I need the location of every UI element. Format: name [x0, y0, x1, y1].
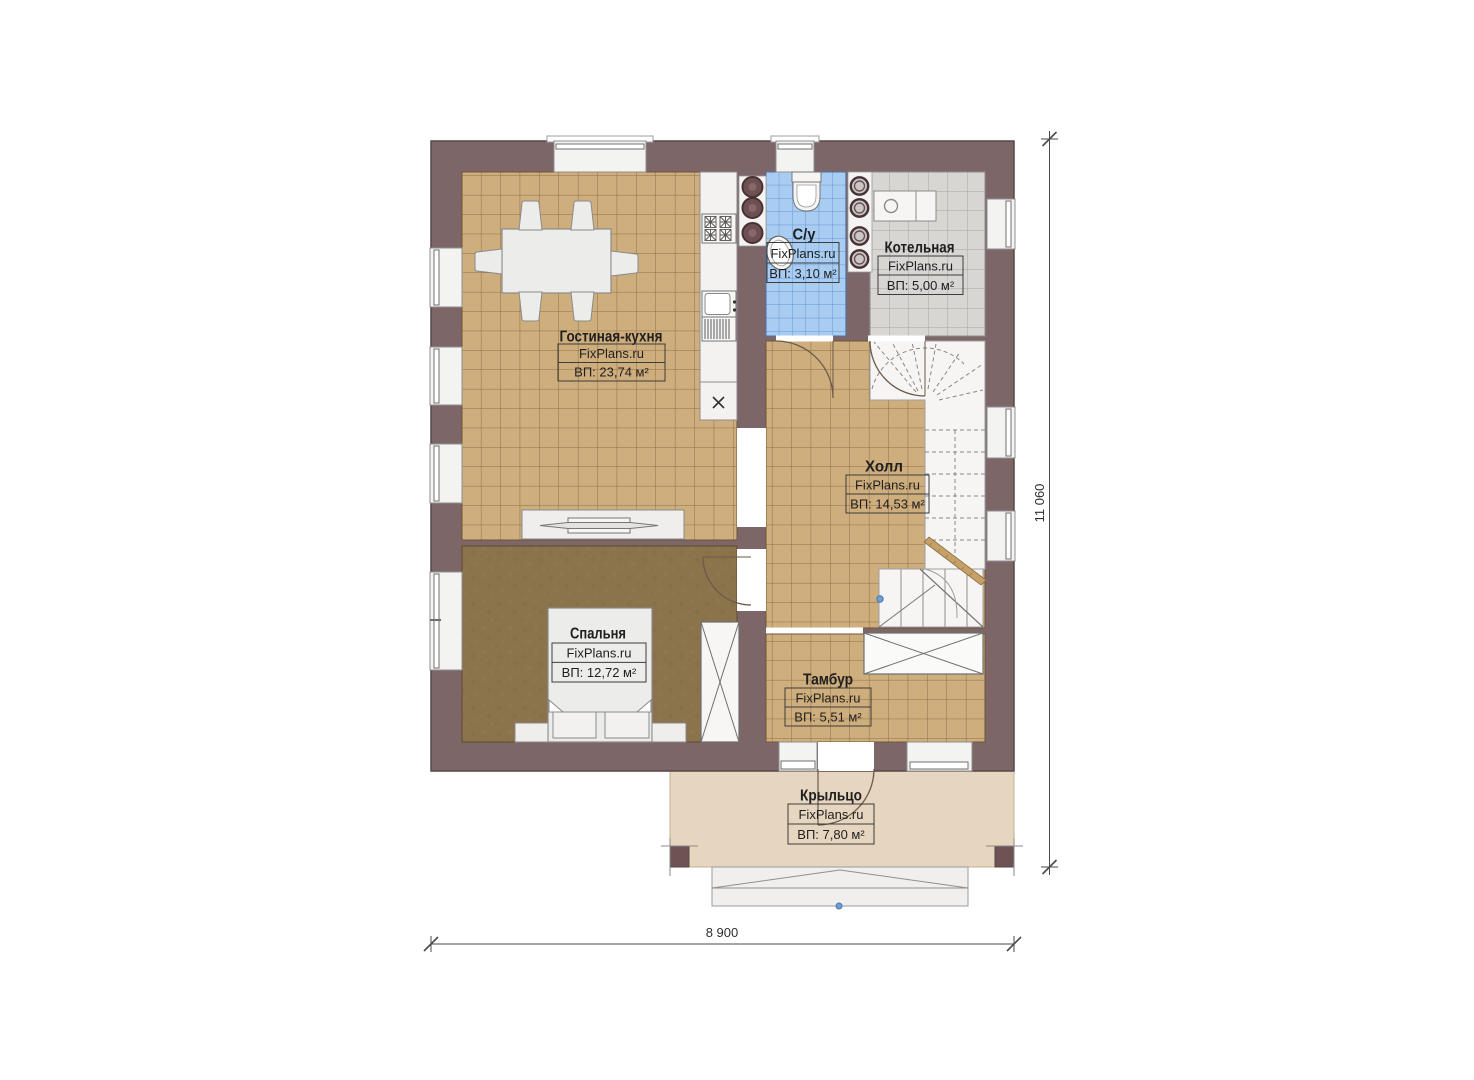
svg-text:11 060: 11 060 — [1032, 484, 1047, 523]
svg-text:Котельная: Котельная — [885, 240, 955, 257]
svg-text:ВП: 7,80 м²: ВП: 7,80 м² — [797, 827, 865, 842]
svg-text:Холл: Холл — [865, 459, 903, 476]
svg-text:FixPlans.ru: FixPlans.ru — [855, 478, 920, 493]
svg-text:8 900: 8 900 — [706, 925, 739, 940]
svg-text:Спальня: Спальня — [570, 626, 626, 643]
svg-text:ВП: 14,53 м²: ВП: 14,53 м² — [850, 497, 925, 512]
svg-text:ВП: 5,51 м²: ВП: 5,51 м² — [794, 710, 862, 725]
svg-text:FixPlans.ru: FixPlans.ru — [579, 346, 644, 361]
svg-text:Гостиная-кухня: Гостиная-кухня — [560, 329, 663, 346]
svg-text:Тамбур: Тамбур — [803, 672, 853, 689]
svg-text:ВП: 12,72 м²: ВП: 12,72 м² — [562, 665, 637, 680]
svg-text:FixPlans.ru: FixPlans.ru — [796, 691, 861, 706]
svg-text:FixPlans.ru: FixPlans.ru — [567, 646, 632, 661]
svg-text:FixPlans.ru: FixPlans.ru — [888, 259, 953, 274]
svg-text:ВП: 3,10 м²: ВП: 3,10 м² — [769, 266, 837, 281]
svg-text:FixPlans.ru: FixPlans.ru — [771, 246, 836, 261]
svg-text:ВП: 5,00 м²: ВП: 5,00 м² — [887, 278, 955, 293]
svg-text:FixPlans.ru: FixPlans.ru — [799, 807, 864, 822]
svg-text:С/у: С/у — [793, 227, 816, 244]
svg-text:ВП: 23,74 м²: ВП: 23,74 м² — [574, 365, 649, 380]
svg-text:Крыльцо: Крыльцо — [800, 788, 862, 805]
